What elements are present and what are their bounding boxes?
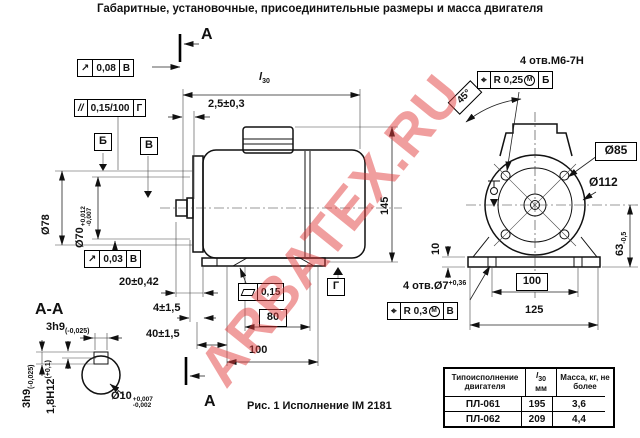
dim-key-h-main: 1,8H12 <box>45 379 57 414</box>
dim-feet80-box: 80 <box>259 309 287 327</box>
table-header-l30-sub: 30 <box>538 376 546 383</box>
runout-icon: ↗ <box>78 60 92 76</box>
gdt-position-flange-datum: Б <box>538 72 552 88</box>
dim-feet100: 100 <box>249 344 267 356</box>
table-cell-model: ПЛ-061 <box>445 396 521 411</box>
gdt-flatness-value: 0,15 <box>257 284 283 300</box>
dim-d70-sub: -0,007 <box>87 206 93 226</box>
dim-l30: l30 <box>259 71 270 85</box>
gdt-position-feet: ⌖ R 0,3M В <box>387 302 458 320</box>
table-header-row: Типоисполнение двигателя l30мм Масса, кг… <box>445 369 613 396</box>
gdt-flatness: 0,15 <box>238 283 284 301</box>
table-cell-mass: 4,4 <box>552 411 605 426</box>
dim-feet-holes: 4 отв.Ø7+0,36 <box>403 280 466 292</box>
gdt-runout-bottom-value: 0,03 <box>99 251 125 267</box>
gdt-position-flange-val: R 0,25 <box>494 75 523 86</box>
table-row: ПЛ-062 209 4,4 <box>445 411 613 426</box>
dim-h145: 145 <box>379 197 391 215</box>
dim-key-w-top: 3h9(-0,025) <box>46 321 89 335</box>
gdt-parallelism: // 0,15/100 Г <box>74 99 146 117</box>
dim-key-off: 4±1,5 <box>153 302 180 314</box>
gdt-runout-bottom: ↗ 0,03 В <box>84 250 141 268</box>
datum-box-b: Б <box>94 133 112 151</box>
dim-base125: 125 <box>525 304 543 316</box>
table-cell-l30: 209 <box>521 411 552 426</box>
side-view-dimensions <box>55 34 398 385</box>
motor-spec-table: Типоисполнение двигателя l30мм Масса, кг… <box>443 367 615 428</box>
dim-key-h: 1,8H12(+0,1) <box>45 360 57 414</box>
table-header-model: Типоисполнение двигателя <box>445 369 525 396</box>
dim-h63-sub: -0,5 <box>621 232 628 244</box>
dim-d10-main: Ø10 <box>111 390 132 402</box>
runout-icon: ↗ <box>85 251 99 267</box>
table-cell-l30: 195 <box>521 396 552 411</box>
dim-key-w-side: 3h9(-0,025) <box>21 365 35 408</box>
datum-box-g: Г <box>327 278 345 296</box>
table-header-l30: l30мм <box>525 369 556 396</box>
position-icon: ⌖ <box>478 72 490 88</box>
gdt-runout-top-datum: В <box>119 60 133 76</box>
gdt-runout-bottom-datum: В <box>126 251 140 267</box>
dim-key-len: 40±1,5 <box>146 328 180 340</box>
dim-d78: Ø78 <box>40 214 52 235</box>
dim-d10: Ø10+0,007-0,002 <box>111 390 153 409</box>
flatness-icon <box>239 284 257 300</box>
gdt-runout-top-value: 0,08 <box>92 60 118 76</box>
drawing-sheet: Габаритные, установочные, присоединитель… <box>0 0 640 438</box>
section-mark-top: А <box>201 26 213 44</box>
mmc-icon: M <box>524 75 535 86</box>
gdt-position-flange-value: R 0,25M <box>490 72 538 88</box>
parallelism-icon: // <box>75 100 87 116</box>
table-header-mass: Масса, кг, не более <box>556 369 613 396</box>
section-aa-title: А-А <box>35 301 63 319</box>
dim-plate10: 10 <box>430 243 442 255</box>
dim-d10-sub: -0,002 <box>133 403 153 409</box>
dim-shaft-len: 20±0,42 <box>119 276 159 288</box>
section-mark-bottom: А <box>204 393 216 411</box>
table-cell-model: ПЛ-062 <box>445 411 521 426</box>
datum-box-v: В <box>140 137 158 155</box>
dim-key-w-side-sub: (-0,025) <box>28 365 35 390</box>
dim-base100-box: 100 <box>516 273 548 291</box>
gdt-position-flange: ⌖ R 0,25M Б <box>477 71 553 89</box>
mmc-icon: M <box>429 306 440 317</box>
position-icon: ⌖ <box>388 303 400 319</box>
dim-feet-holes-main: 4 отв.Ø7 <box>403 280 449 292</box>
dim-d85-box: Ø85 <box>595 142 637 161</box>
gdt-parallelism-value: 0,15/100 <box>87 100 133 116</box>
gdt-position-feet-datum: В <box>443 303 457 319</box>
gdt-parallelism-datum: Г <box>133 100 146 116</box>
table-cell-mass: 3,6 <box>552 396 605 411</box>
gdt-position-feet-val: R 0,3 <box>404 306 428 317</box>
table-header-l30-unit: мм <box>535 384 547 393</box>
figure-caption: Рис. 1 Исполнение IM 2181 <box>247 400 392 412</box>
dim-gap: 2,5±0,3 <box>208 98 245 110</box>
dim-d70: Ø70+0,012-0,007 <box>74 206 93 248</box>
dim-feet-holes-sup: +0,36 <box>449 280 467 287</box>
dim-key-w-top-main: 3h9 <box>46 321 65 333</box>
dim-key-w-side-main: 3h9 <box>21 389 33 408</box>
dim-h63-main: 63 <box>614 244 626 256</box>
side-view <box>160 127 402 266</box>
table-row: ПЛ-061 195 3,6 <box>445 396 613 411</box>
gdt-runout-top: ↗ 0,08 В <box>77 59 134 77</box>
end-view-dimensions <box>442 92 638 330</box>
gdt-position-feet-value: R 0,3M <box>400 303 443 319</box>
dim-d112: Ø112 <box>589 175 618 189</box>
dim-key-w-top-sub: (-0,025) <box>65 328 90 335</box>
dim-flange-holes: 4 отв.М6-7Н <box>520 55 584 67</box>
dim-key-h-sup: (+0,1) <box>45 360 52 378</box>
dim-l30-sub: 30 <box>262 78 270 85</box>
dim-h63: 63-0,5 <box>614 232 628 256</box>
dim-d70-main: Ø70 <box>74 227 86 248</box>
